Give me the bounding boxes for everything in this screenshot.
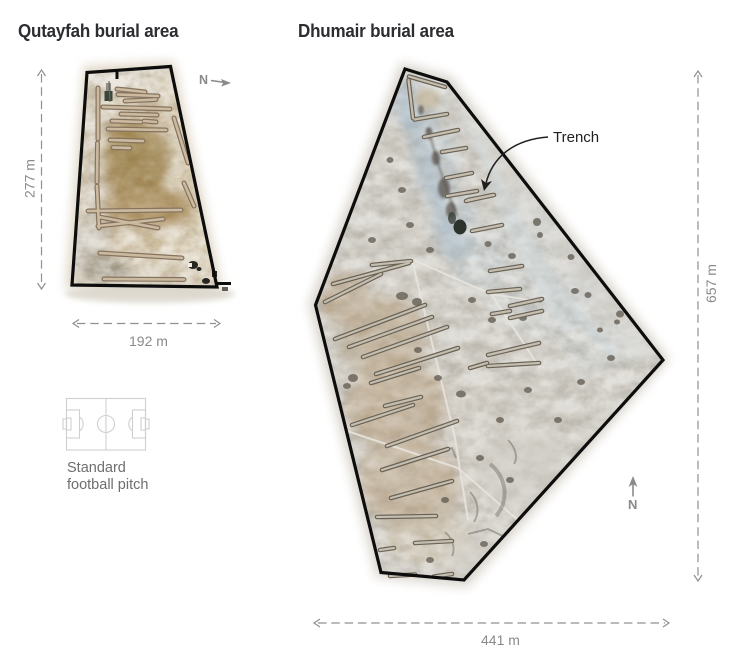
svg-text:Standard: Standard — [67, 460, 126, 476]
svg-text:657 m: 657 m — [703, 264, 719, 303]
svg-text:192 m: 192 m — [129, 333, 168, 349]
svg-text:Trench: Trench — [553, 129, 599, 146]
svg-text:277 m: 277 m — [22, 159, 38, 198]
svg-text:441 m: 441 m — [481, 632, 520, 648]
svg-text:N: N — [628, 497, 637, 512]
svg-text:football pitch: football pitch — [67, 477, 148, 493]
svg-text:N: N — [199, 73, 208, 87]
